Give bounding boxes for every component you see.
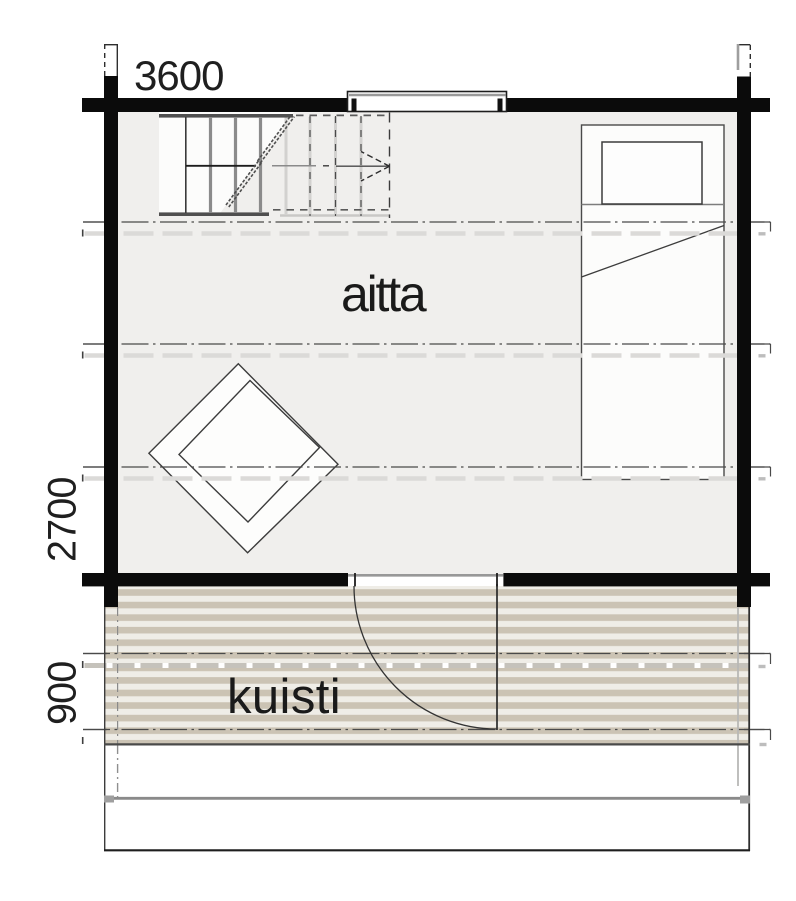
svg-text:kuisti: kuisti — [227, 670, 341, 724]
svg-text:aitta: aitta — [341, 266, 427, 322]
svg-text:2700: 2700 — [41, 477, 85, 562]
svg-text:900: 900 — [41, 661, 85, 725]
svg-text:3600: 3600 — [134, 52, 223, 99]
